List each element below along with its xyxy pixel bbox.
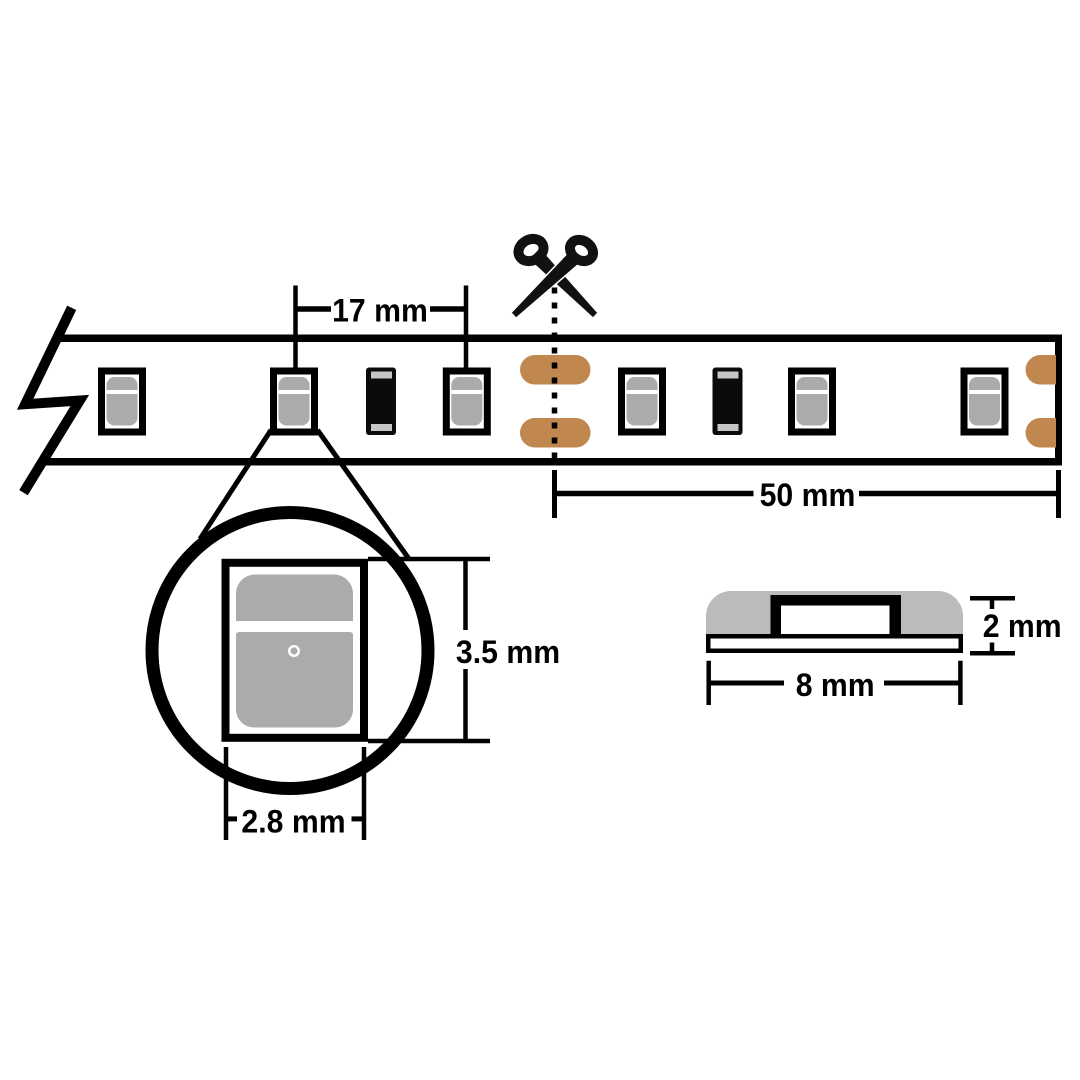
svg-text:2 mm: 2 mm [983,608,1062,644]
svg-text:3.5 mm: 3.5 mm [456,634,560,670]
svg-text:50 mm: 50 mm [760,477,856,513]
svg-text:2.8 mm: 2.8 mm [241,804,345,840]
svg-text:8 mm: 8 mm [796,667,875,703]
svg-text:17 mm: 17 mm [332,292,428,328]
